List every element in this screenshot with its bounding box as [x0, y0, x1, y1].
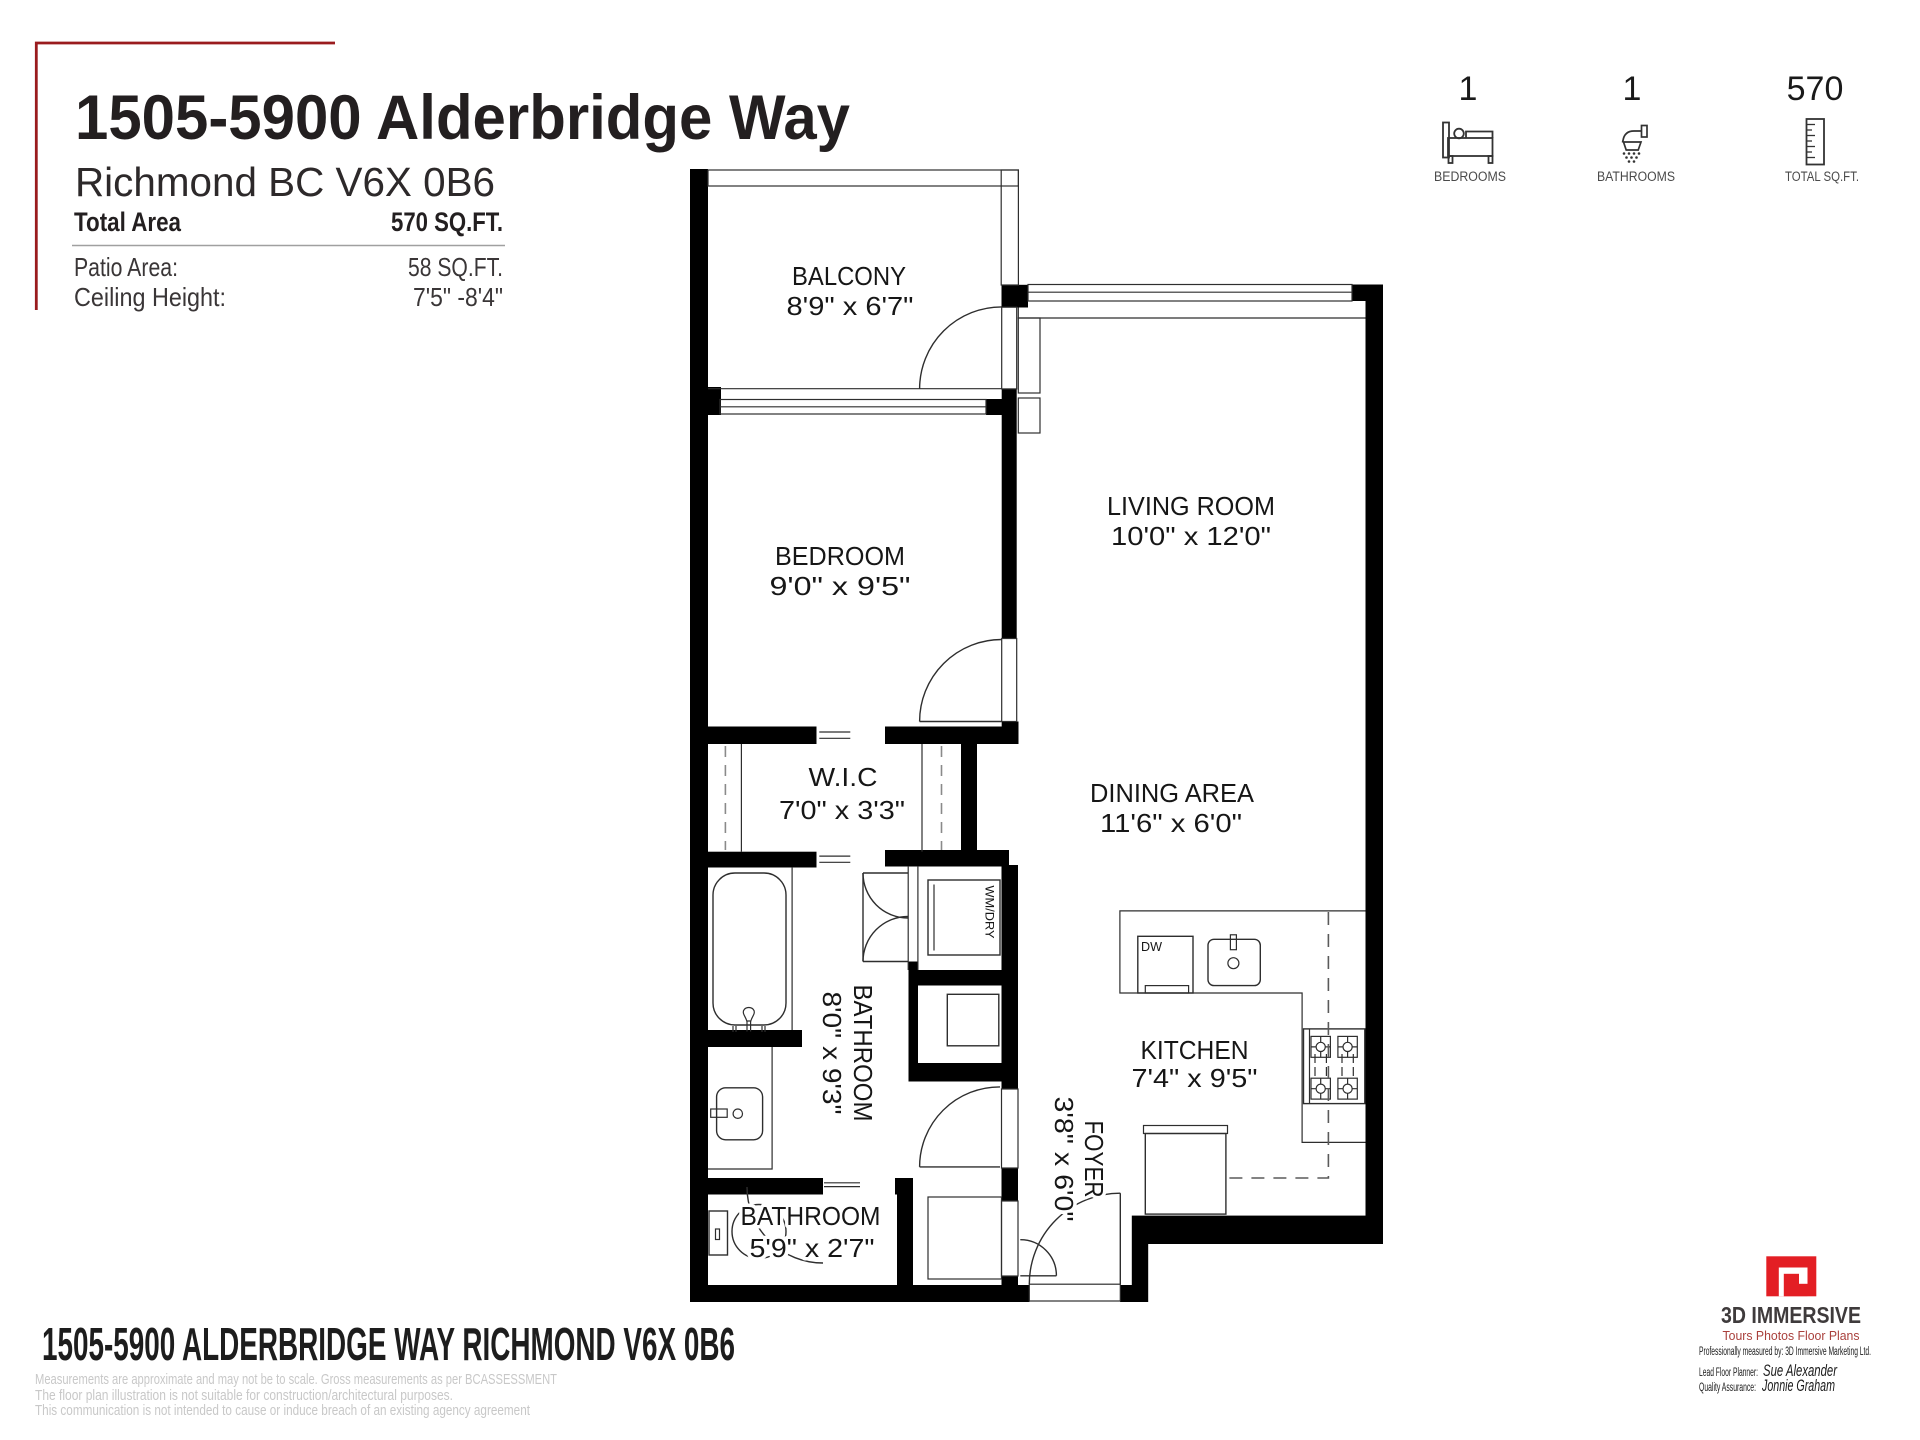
svg-text:7'5" -8'4": 7'5" -8'4" — [413, 282, 503, 312]
svg-text:Professionally measured by: 3D: Professionally measured by: 3D Immersive… — [1699, 1346, 1871, 1358]
svg-text:570: 570 — [1787, 70, 1844, 108]
svg-text:7'4" x 9'5": 7'4" x 9'5" — [1132, 1063, 1258, 1093]
svg-text:10'0" x 12'0": 10'0" x 12'0" — [1111, 521, 1271, 551]
svg-text:9'0" x 9'5": 9'0" x 9'5" — [770, 571, 911, 601]
svg-text:Tours Photos Floor Plans: Tours Photos Floor Plans — [1723, 1328, 1860, 1343]
svg-text:1: 1 — [1459, 70, 1478, 108]
svg-text:BEDROOMS: BEDROOMS — [1434, 169, 1506, 184]
svg-text:BATHROOM: BATHROOM — [848, 985, 878, 1122]
svg-text:1505-5900 ALDERBRIDGE WAY RICH: 1505-5900 ALDERBRIDGE WAY RICHMOND V6X 0… — [42, 1318, 735, 1370]
svg-text:TOTAL SQ.FT.: TOTAL SQ.FT. — [1785, 169, 1859, 184]
svg-text:WM/DRY: WM/DRY — [983, 886, 995, 939]
svg-text:W.I.C: W.I.C — [809, 762, 878, 792]
svg-text:1: 1 — [1623, 70, 1642, 108]
svg-text:BALCONY: BALCONY — [792, 261, 906, 291]
svg-text:DW: DW — [1141, 939, 1163, 954]
svg-text:3'8" x 6'0": 3'8" x 6'0" — [1049, 1097, 1079, 1222]
svg-text:8'0" x 9'3": 8'0" x 9'3" — [817, 992, 847, 1115]
svg-text:570 SQ.FT.: 570 SQ.FT. — [391, 207, 503, 237]
svg-text:Richmond BC V6X 0B6: Richmond BC V6X 0B6 — [75, 159, 495, 205]
svg-text:Total Area: Total Area — [74, 207, 182, 237]
svg-text:Measurements are approximate a: Measurements are approximate and may not… — [35, 1372, 557, 1388]
svg-text:LIVING ROOM: LIVING ROOM — [1107, 491, 1275, 521]
svg-text:BATHROOMS: BATHROOMS — [1597, 169, 1675, 184]
svg-text:KITCHEN: KITCHEN — [1141, 1035, 1249, 1065]
svg-text:11'6" x 6'0": 11'6" x 6'0" — [1100, 808, 1242, 838]
svg-text:Patio Area:: Patio Area: — [74, 252, 178, 282]
svg-text:FOYER: FOYER — [1079, 1121, 1109, 1198]
svg-text:BEDROOM: BEDROOM — [775, 541, 905, 571]
svg-text:58 SQ.FT.: 58 SQ.FT. — [408, 252, 503, 282]
svg-text:BATHROOM: BATHROOM — [741, 1201, 881, 1231]
svg-text:DINING AREA: DINING AREA — [1090, 778, 1255, 808]
svg-text:Jonnie Graham: Jonnie Graham — [1761, 1376, 1835, 1395]
svg-text:This communication is not inte: This communication is not intended to ca… — [35, 1403, 530, 1419]
svg-text:7'0" x 3'3": 7'0" x 3'3" — [779, 795, 905, 825]
svg-text:8'9" x 6'7": 8'9" x 6'7" — [787, 291, 914, 321]
svg-text:Ceiling Height:: Ceiling Height: — [74, 282, 226, 312]
svg-text:Lead Floor Planner:: Lead Floor Planner: — [1699, 1367, 1758, 1379]
svg-text:Quality Assurance:: Quality Assurance: — [1699, 1382, 1756, 1394]
svg-text:5'9" x 2'7": 5'9" x 2'7" — [750, 1233, 875, 1263]
svg-text:1505-5900 Alderbridge Way: 1505-5900 Alderbridge Way — [75, 83, 850, 153]
svg-text:The floor plan illustration is: The floor plan illustration is not suita… — [35, 1388, 453, 1404]
svg-text:3D IMMERSIVE: 3D IMMERSIVE — [1721, 1302, 1861, 1328]
